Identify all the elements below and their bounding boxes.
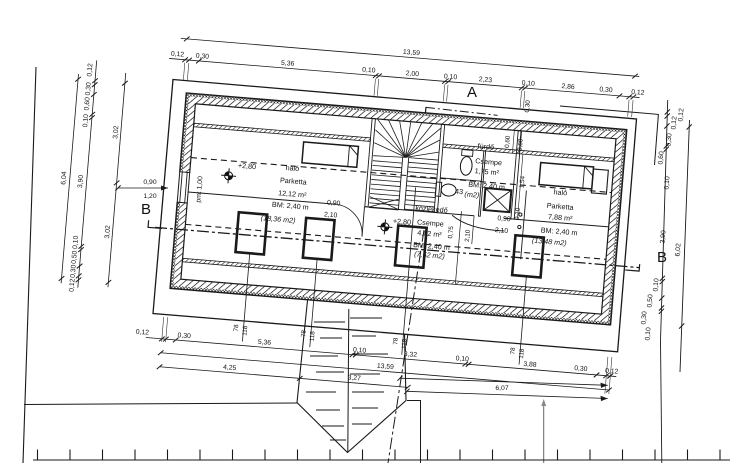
svg-text:B: B — [141, 201, 151, 218]
svg-text:3,88: 3,88 — [523, 361, 537, 369]
svg-text:0,12: 0,12 — [171, 51, 185, 59]
svg-text:A: A — [467, 84, 477, 101]
svg-text:3,02: 3,02 — [112, 125, 120, 139]
svg-text:fürdő: fürdő — [477, 141, 494, 151]
svg-text:0,30: 0,30 — [195, 53, 209, 61]
svg-text:0,10: 0,10 — [664, 176, 672, 190]
svg-text:5,36: 5,36 — [258, 339, 272, 347]
svg-text:3,90: 3,90 — [77, 174, 85, 188]
svg-text:4,25: 4,25 — [223, 364, 237, 372]
svg-text:0,30: 0,30 — [574, 365, 588, 373]
svg-text:0,30: 0,30 — [641, 311, 649, 325]
svg-text:118: 118 — [309, 331, 317, 342]
svg-text:0,12: 0,12 — [135, 329, 149, 337]
svg-text:1,20: 1,20 — [143, 193, 156, 200]
svg-text:0,10: 0,10 — [653, 278, 661, 292]
svg-text:0,30: 0,30 — [524, 99, 532, 112]
svg-text:0,12: 0,12 — [68, 278, 76, 292]
svg-text:0,60: 0,60 — [504, 135, 512, 148]
svg-text:0,60: 0,60 — [84, 97, 92, 111]
svg-text:B: B — [657, 249, 667, 266]
svg-text:6,02: 6,02 — [675, 243, 683, 257]
svg-text:118: 118 — [241, 325, 249, 336]
svg-text:2,00: 2,00 — [405, 70, 419, 78]
svg-text:0,90: 0,90 — [143, 179, 156, 186]
svg-text:0,75: 0,75 — [447, 226, 455, 239]
svg-text:0,10: 0,10 — [444, 73, 458, 81]
svg-text:0,10: 0,10 — [362, 66, 376, 74]
svg-text:haló: haló — [285, 163, 299, 173]
svg-text:0,50: 0,50 — [647, 294, 655, 308]
svg-text:0,10: 0,10 — [645, 327, 653, 341]
svg-text:3,27: 3,27 — [347, 374, 361, 382]
svg-text:78: 78 — [392, 337, 400, 345]
svg-text:1,54: 1,54 — [519, 175, 527, 188]
svg-text:0,10: 0,10 — [455, 355, 469, 363]
svg-text:0,10: 0,10 — [82, 114, 90, 128]
svg-text:13,59: 13,59 — [403, 49, 421, 57]
svg-text:6,04: 6,04 — [60, 171, 68, 185]
svg-text:2,10: 2,10 — [495, 227, 509, 235]
svg-text:0,12: 0,12 — [86, 63, 94, 77]
svg-text:3,02: 3,02 — [104, 225, 112, 239]
svg-text:118: 118 — [518, 348, 526, 359]
svg-text:0,60: 0,60 — [658, 151, 666, 165]
svg-text:3,90: 3,90 — [660, 230, 668, 244]
svg-text:0,12: 0,12 — [678, 108, 686, 122]
svg-text:0,90: 0,90 — [497, 215, 511, 223]
svg-text:0,10: 0,10 — [72, 235, 80, 249]
svg-text:0,10: 0,10 — [521, 80, 535, 88]
svg-text:0,30: 0,30 — [70, 264, 78, 278]
svg-text:0,60: 0,60 — [517, 138, 525, 151]
svg-text:(m2): (m2) — [464, 189, 479, 199]
svg-text:0,30: 0,30 — [599, 86, 613, 94]
svg-text:2,10: 2,10 — [464, 229, 472, 242]
svg-text:0,90: 0,90 — [327, 200, 341, 208]
svg-text:0,30: 0,30 — [85, 82, 93, 96]
svg-text:0,30: 0,30 — [666, 133, 674, 147]
svg-text:0,10: 0,10 — [514, 207, 522, 220]
svg-text:0,50: 0,50 — [71, 250, 79, 264]
svg-text:78: 78 — [509, 347, 517, 355]
svg-text:2,23: 2,23 — [479, 76, 493, 84]
svg-text:13,59: 13,59 — [377, 363, 395, 371]
svg-text:0,12: 0,12 — [631, 89, 645, 97]
svg-text:5,36: 5,36 — [281, 60, 295, 68]
svg-text:2,86: 2,86 — [561, 83, 575, 91]
svg-text:0,30: 0,30 — [177, 332, 191, 340]
svg-text:6,07: 6,07 — [495, 385, 508, 392]
svg-text:78: 78 — [233, 324, 241, 332]
